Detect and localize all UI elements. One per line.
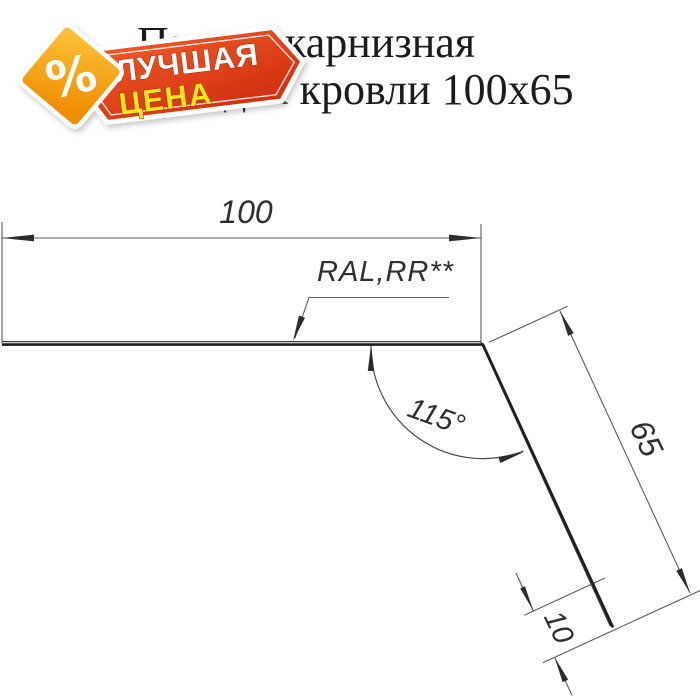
- best-price-badge: ЛУЧШАЯ ЦЕНА %: [0, 10, 322, 142]
- dim-width-label: 100: [196, 194, 296, 231]
- coating-label: RAL,RR**: [317, 256, 454, 289]
- dimension-slope-lines: [489, 306, 700, 662]
- coating-leader-lines: [293, 298, 449, 342]
- product-image: Планка карнизная для кровли 100х65: [0, 0, 700, 700]
